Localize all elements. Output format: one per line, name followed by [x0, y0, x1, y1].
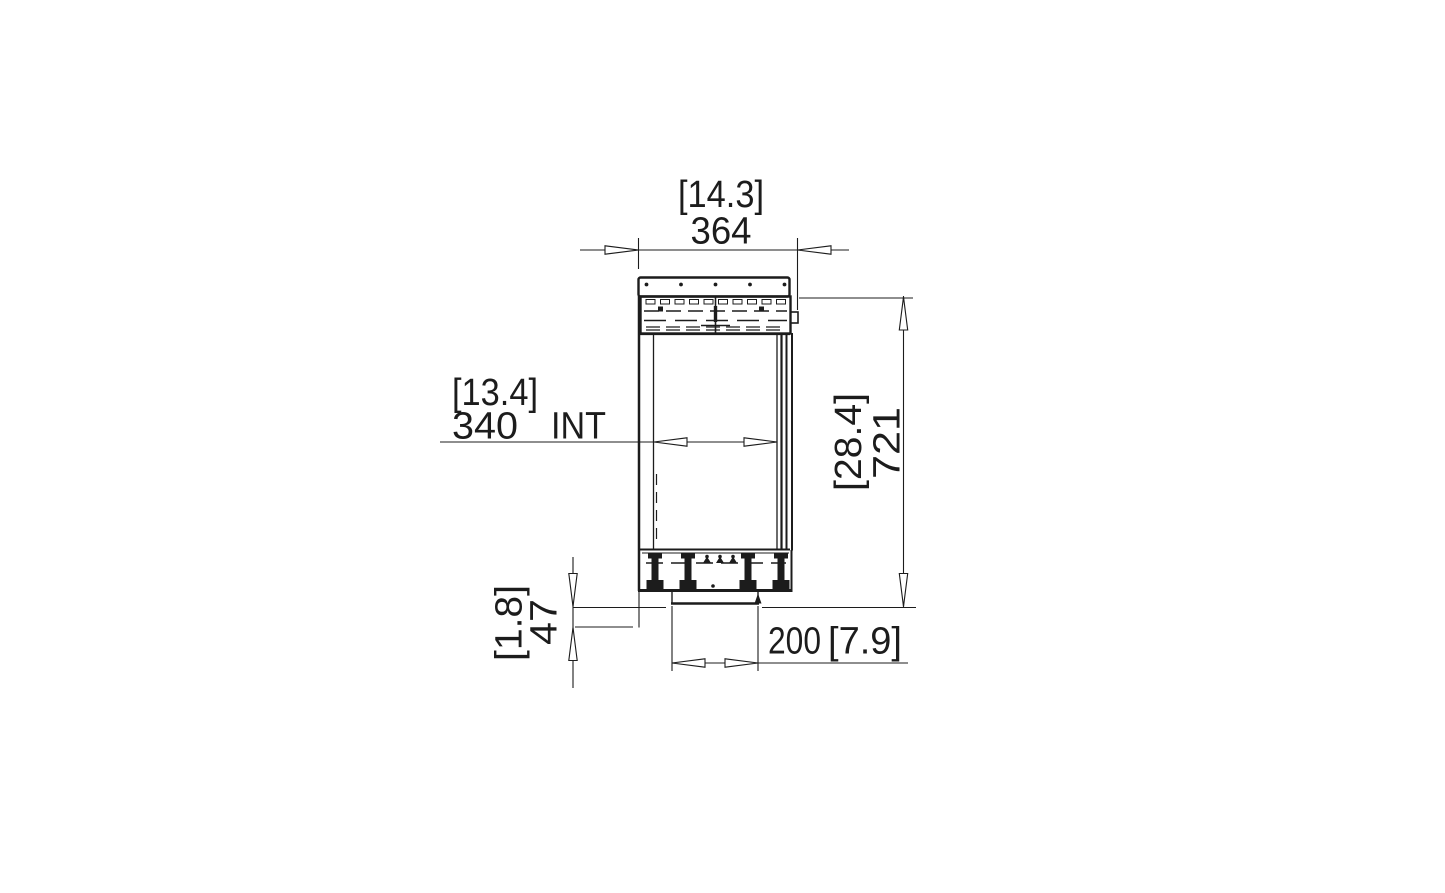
bolt-nut: [740, 580, 757, 590]
burner-hatch-cell: [748, 300, 757, 305]
base-dot: [711, 584, 715, 588]
dimension-base-offset: [569, 557, 666, 688]
drawing-page: [14.3] 364 [13.4] 340 INT [28.4] 721 [1.…: [0, 0, 1445, 893]
burner-hatch-cell: [704, 300, 713, 305]
screw-hole: [714, 283, 718, 287]
base-clip-mark: [729, 557, 737, 564]
base-clip-mark: [703, 557, 711, 564]
screw-hole: [783, 283, 787, 287]
hidden-detail-mark: [658, 307, 663, 312]
hidden-detail-mark: [759, 307, 764, 312]
base-assembly: [638, 550, 793, 592]
flange-screw-holes: [645, 283, 787, 287]
arrowhead-up: [569, 628, 577, 661]
arrowhead-left: [672, 659, 705, 667]
arrowhead-down: [899, 574, 907, 607]
bolt-stem: [778, 558, 785, 581]
technical-drawing-canvas: [14.3] 364 [13.4] 340 INT [28.4] 721 [1.…: [0, 0, 1445, 893]
screw-hole: [748, 283, 752, 287]
arrowhead-right: [744, 438, 777, 446]
bolt-stem: [685, 558, 692, 581]
top-flange: [639, 278, 790, 297]
burner-hatch-cell: [675, 300, 684, 305]
burner-box: [641, 297, 799, 334]
burner-hatch-cell: [719, 300, 728, 305]
arrowhead-right: [605, 246, 639, 254]
bolt-stem: [745, 558, 752, 581]
bolt-head: [741, 553, 755, 559]
screw-hole: [679, 283, 683, 287]
bolt-stem: [652, 558, 659, 581]
arrowhead-left: [654, 438, 687, 446]
label-base-offset-metric: 47: [524, 599, 566, 645]
bottom-protrusion: [671, 591, 762, 604]
protrusion-mark: [755, 594, 762, 604]
burner-hatch-cell: [777, 300, 786, 305]
bolt-head: [648, 553, 662, 559]
glass-panel: [787, 333, 793, 551]
arrowhead-down: [569, 574, 577, 607]
label-internal-width-metric: 340: [452, 406, 518, 448]
bolt-head: [681, 553, 695, 559]
bolt-nut: [680, 580, 697, 590]
label-bottom-width-metric: 200: [768, 621, 821, 663]
burner-hatch-cell: [690, 300, 699, 305]
label-overall-height-imperial: [28.4]: [828, 393, 870, 491]
mounting-bolts: [647, 553, 790, 591]
screw-hole: [645, 283, 649, 287]
burner-hatch-cell: [661, 300, 670, 305]
label-top-width-metric: 364: [691, 211, 752, 253]
burner-hatch-cell: [762, 300, 771, 305]
label-internal-width-qualifier: INT: [551, 406, 606, 448]
base-dot: [647, 584, 651, 588]
label-overall-height-metric: 721: [867, 407, 909, 479]
base-clip-mark: [716, 557, 724, 564]
arrowhead-up: [899, 297, 907, 330]
label-bottom-width-imperial: [7.9]: [828, 621, 902, 663]
flange-outline: [639, 278, 790, 297]
bolt-nut: [773, 580, 790, 590]
burner-hatch-cell: [733, 300, 742, 305]
arrowhead-left: [798, 246, 832, 254]
arrowhead-right: [725, 659, 758, 667]
burner-hatch-cell: [646, 300, 655, 305]
bolt-head: [774, 553, 788, 559]
